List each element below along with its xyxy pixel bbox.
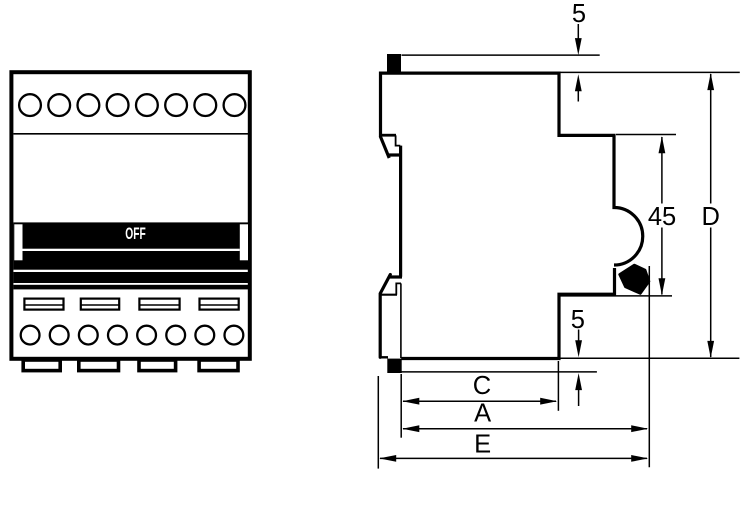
svg-text:D: D xyxy=(701,203,719,231)
svg-text:OFF: OFF xyxy=(125,225,146,243)
svg-text:E: E xyxy=(474,430,491,458)
svg-text:45: 45 xyxy=(648,203,676,231)
svg-text:A: A xyxy=(474,399,491,427)
svg-text:5: 5 xyxy=(571,306,585,334)
svg-text:C: C xyxy=(473,372,491,400)
svg-text:5: 5 xyxy=(572,0,586,28)
